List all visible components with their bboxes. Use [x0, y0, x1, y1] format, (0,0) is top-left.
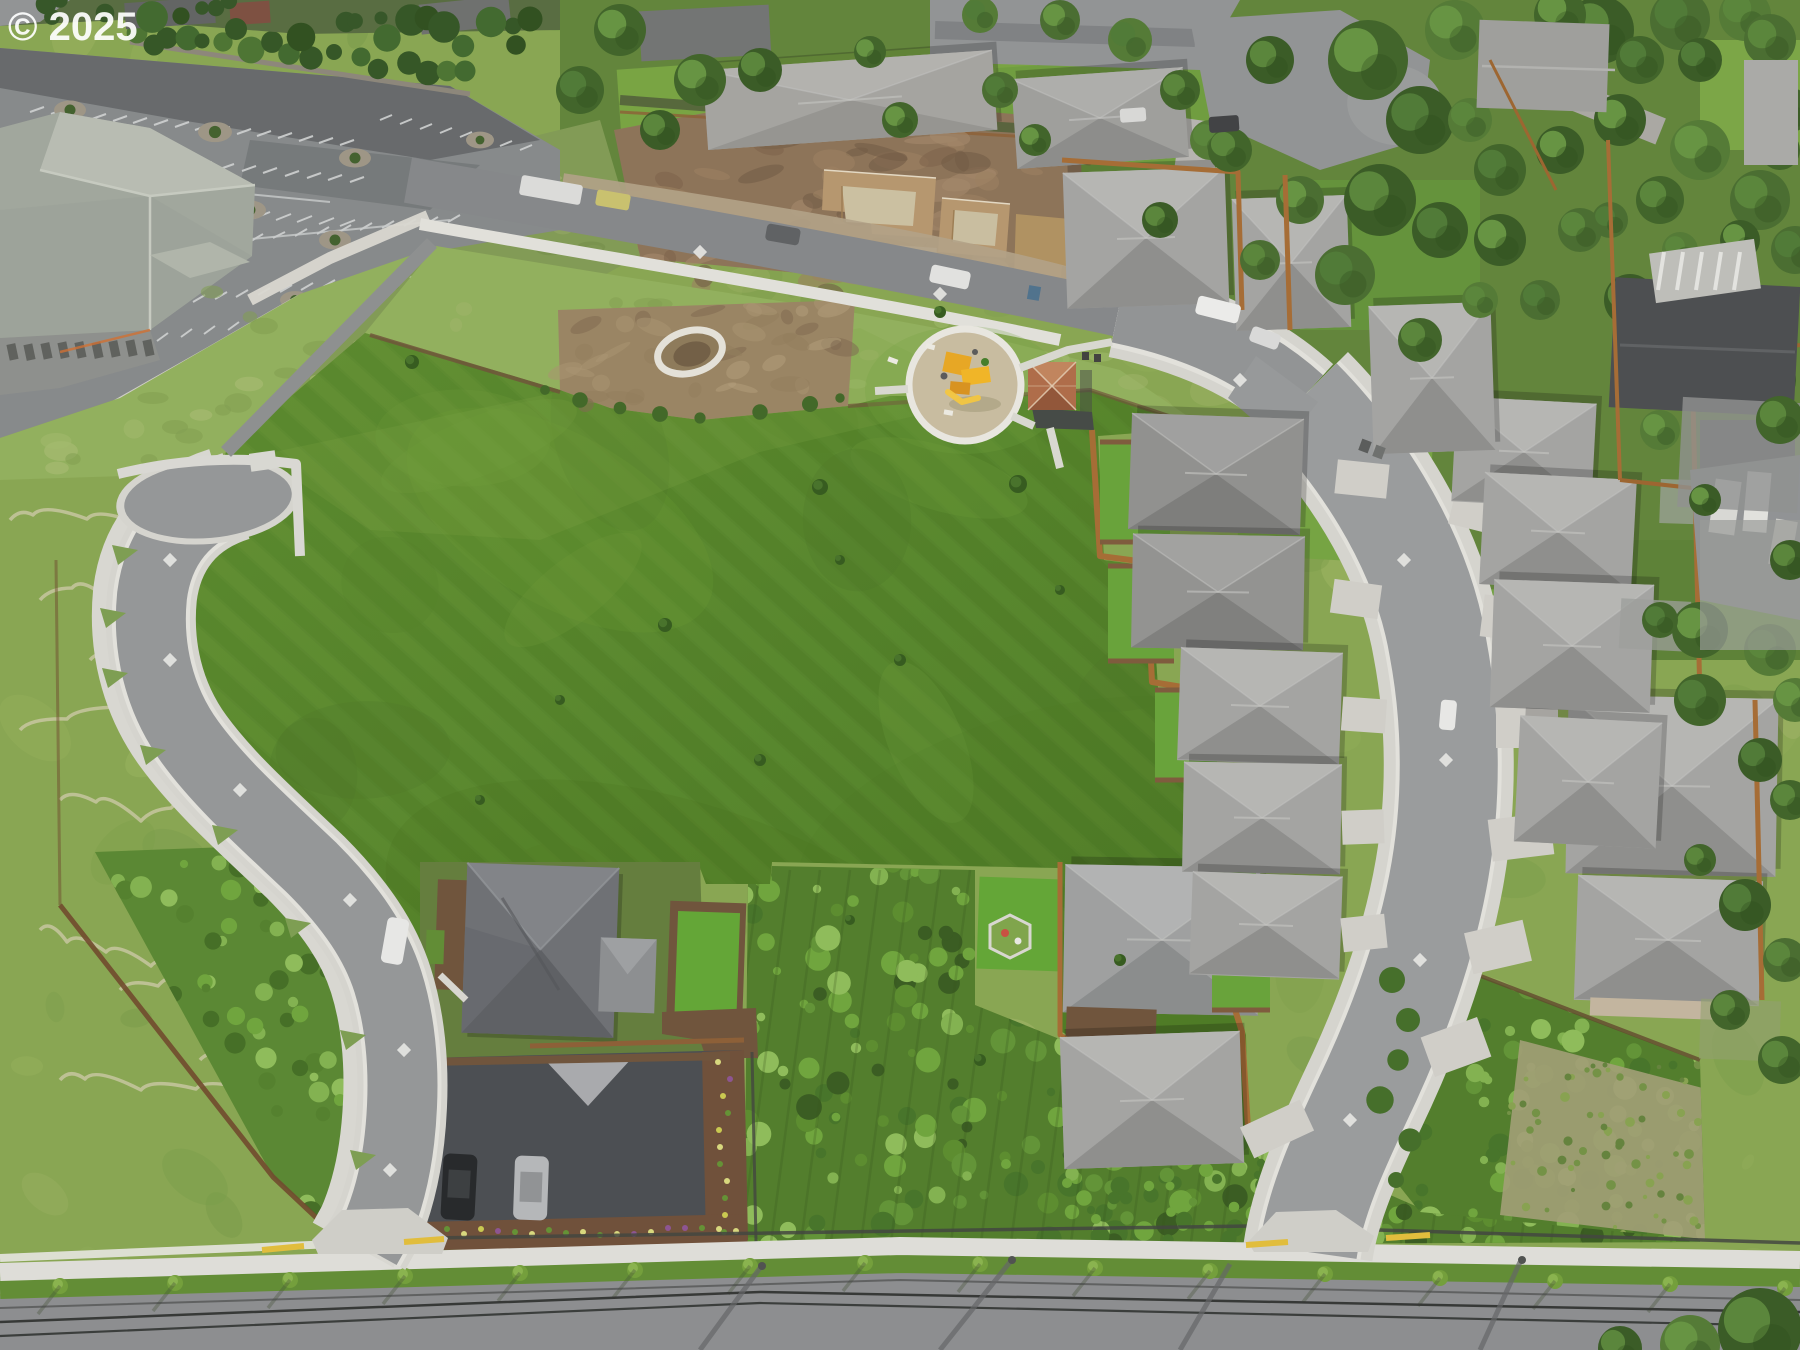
svg-text:© 2025: © 2025 — [8, 5, 138, 49]
